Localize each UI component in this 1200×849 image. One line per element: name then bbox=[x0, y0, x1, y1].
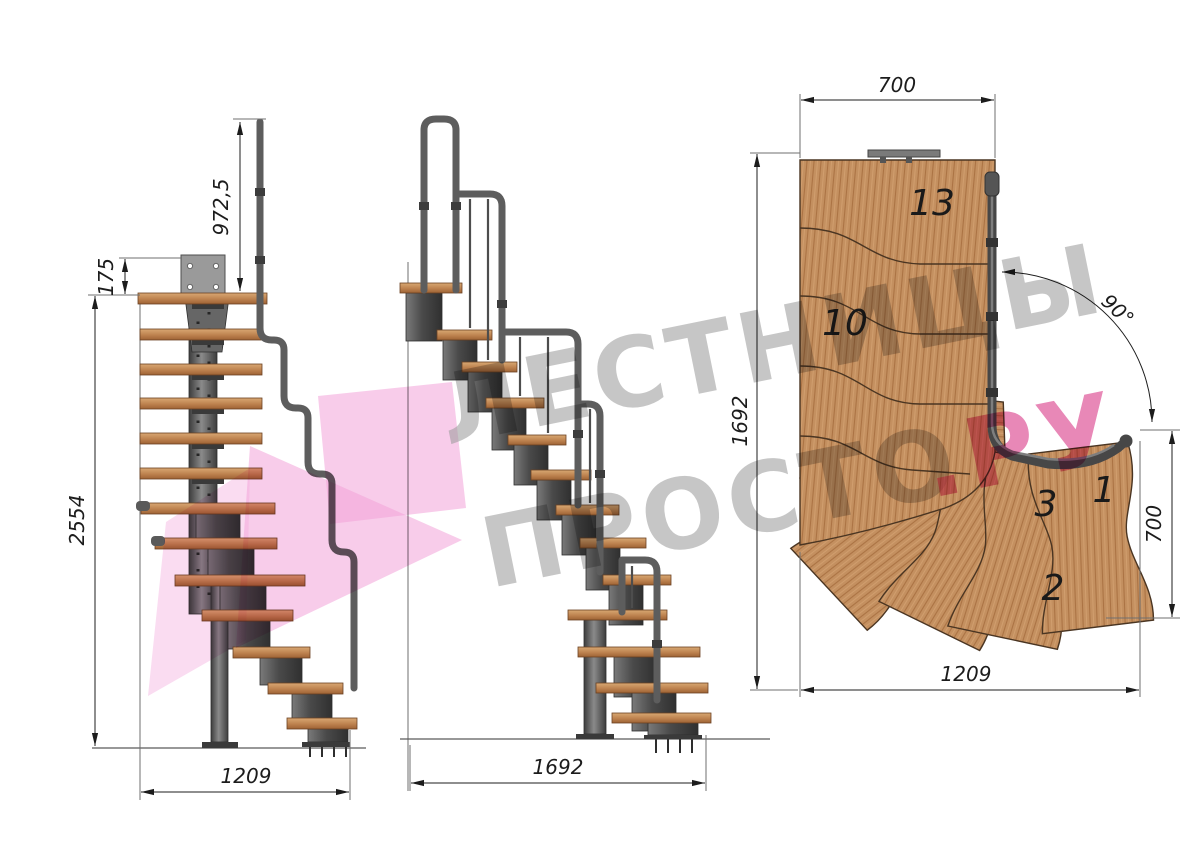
front-step bbox=[287, 718, 357, 729]
front-step bbox=[140, 364, 262, 375]
side-step bbox=[568, 610, 667, 620]
front-step bbox=[140, 329, 262, 340]
dim-plan-top-width: 700 bbox=[878, 73, 916, 97]
dim-front-plate-offset: 175 bbox=[94, 258, 118, 296]
side-step bbox=[578, 647, 700, 657]
dim-plan-bottom-width: 1209 bbox=[941, 662, 992, 686]
drawing-svg: 972,5 175 2554 1209 bbox=[0, 0, 1200, 849]
side-step bbox=[596, 683, 708, 693]
front-column-base-plate bbox=[202, 742, 238, 748]
front-step bbox=[268, 683, 343, 694]
plan-wall-bracket-stub bbox=[906, 157, 912, 163]
dim-front-width: 1209 bbox=[221, 764, 272, 788]
side-step bbox=[437, 330, 492, 340]
dim-front-rail-height: 972,5 bbox=[209, 178, 233, 235]
watermark-logo-tail bbox=[148, 468, 250, 696]
front-step bbox=[140, 398, 262, 409]
plan-wall-bracket-stub bbox=[880, 157, 886, 163]
front-step-end-cap bbox=[151, 536, 165, 546]
side-dimensions: 1692 bbox=[410, 735, 706, 791]
plan-step-number-13: 13 bbox=[909, 183, 955, 224]
front-wall-mount-plate bbox=[181, 255, 225, 297]
staircase-technical-drawing: 972,5 175 2554 1209 bbox=[0, 0, 1200, 849]
dim-front-total-height: 2554 bbox=[65, 495, 89, 546]
plan-handrail-end-cap bbox=[985, 172, 999, 196]
front-step-end-cap bbox=[136, 501, 150, 511]
side-step bbox=[612, 713, 711, 723]
front-step bbox=[138, 293, 267, 304]
front-step bbox=[233, 647, 310, 658]
dim-side-length: 1692 bbox=[533, 755, 584, 779]
plan-wall-bracket bbox=[868, 150, 940, 157]
plan-step-number-2: 2 bbox=[1042, 568, 1065, 609]
dim-plan-right-height: 700 bbox=[1142, 505, 1166, 543]
front-step bbox=[140, 433, 262, 444]
